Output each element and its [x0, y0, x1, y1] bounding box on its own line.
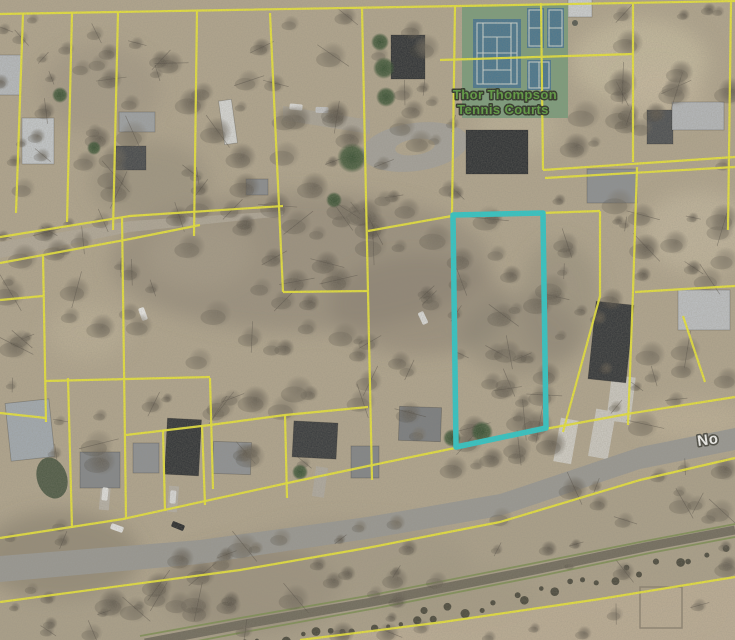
aerial-parcel-map: Thor Thompson Tennis Courts No — [0, 0, 735, 640]
map-canvas: Thor Thompson Tennis Courts No — [0, 0, 735, 640]
image-grain-overlay — [0, 0, 735, 640]
